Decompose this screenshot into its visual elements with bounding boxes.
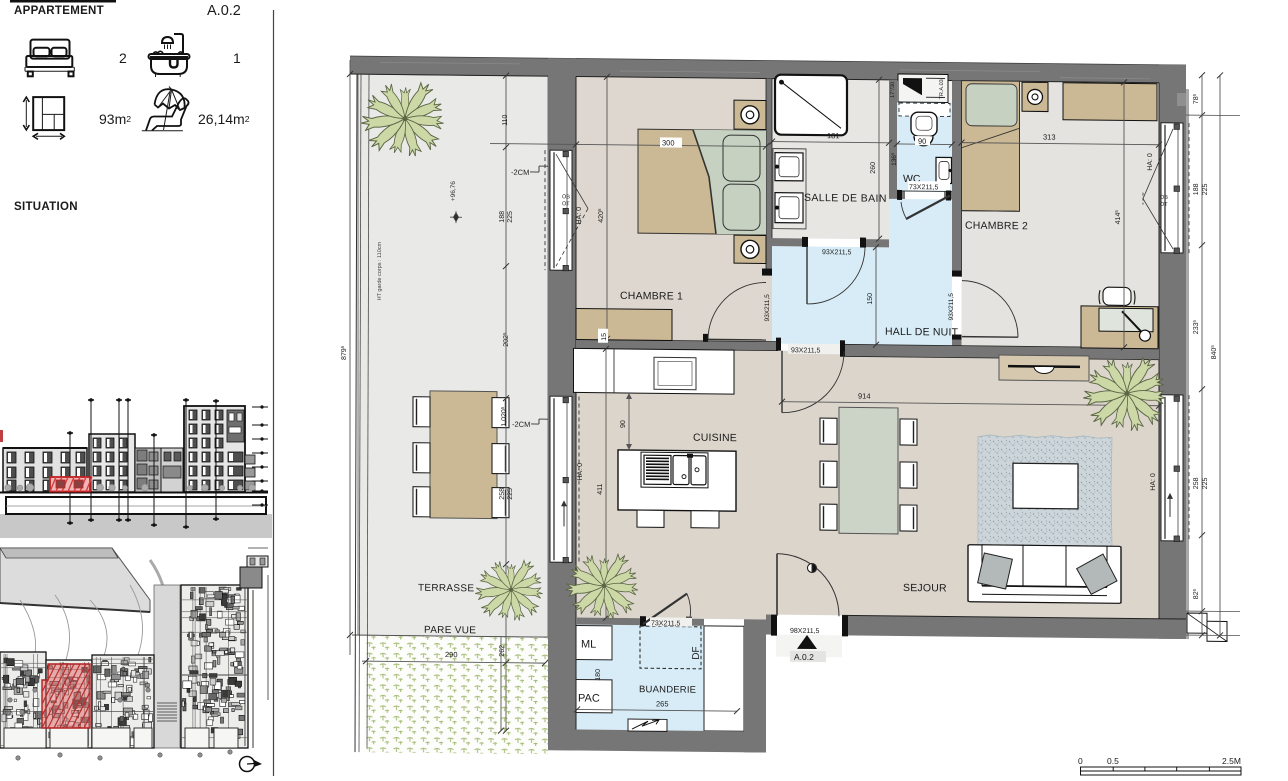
svg-text:180: 180	[595, 669, 602, 681]
svg-text:ML: ML	[581, 639, 596, 651]
svg-text:26,14m2: 26,14m2	[198, 111, 250, 127]
svg-text:93X211,5: 93X211,5	[822, 249, 852, 256]
svg-text:300: 300	[662, 138, 675, 147]
svg-text:DF: DF	[691, 646, 702, 659]
svg-text:CHAMBRE 1: CHAMBRE 1	[620, 290, 683, 303]
svg-text:A.0.2: A.0.2	[794, 652, 814, 662]
svg-text:CUISINE: CUISINE	[693, 432, 737, 444]
svg-text:CHAMBRE 2: CHAMBRE 2	[965, 220, 1028, 233]
svg-text:1: 1	[233, 50, 241, 66]
svg-text:HA: 0: HA: 0	[1150, 473, 1157, 491]
svg-text:-2CM: -2CM	[511, 168, 529, 177]
svg-text:HALL DE NUIT: HALL DE NUIT	[885, 326, 959, 339]
svg-text:188: 188	[1193, 183, 1200, 195]
svg-text:290: 290	[445, 650, 458, 659]
svg-text:APPARTEMENT: APPARTEMENT	[14, 5, 104, 17]
svg-text:A.0.2: A.0.2	[207, 3, 241, 19]
svg-text:265: 265	[656, 699, 669, 708]
svg-text:HA: 0: HA: 0	[576, 207, 583, 225]
svg-text:914: 914	[858, 392, 871, 401]
svg-text:HT garde corps : 110cm: HT garde corps : 110cm	[377, 241, 383, 300]
svg-text:HA: 0: HA: 0	[1147, 153, 1154, 171]
svg-text:2: 2	[119, 50, 127, 66]
svg-text:313: 313	[1043, 133, 1056, 142]
svg-text:150: 150	[867, 293, 874, 305]
svg-text:188: 188	[499, 211, 506, 223]
svg-text:OT: OT	[1160, 202, 1168, 208]
svg-text:OB: OB	[1160, 195, 1168, 201]
svg-text:93X211,5: 93X211,5	[764, 294, 771, 322]
svg-text:225: 225	[507, 211, 514, 223]
svg-text:2.5M: 2.5M	[1222, 756, 1241, 766]
svg-text:OB: OB	[562, 194, 570, 200]
svg-text:73X211,5: 73X211,5	[651, 620, 681, 627]
svg-text:OT: OT	[562, 201, 570, 207]
svg-text:90: 90	[918, 137, 926, 146]
svg-text:SITUATION: SITUATION	[14, 201, 78, 213]
svg-text:258: 258	[499, 488, 506, 500]
svg-text:TR.A.03: TR.A.03	[939, 79, 945, 99]
svg-text:15: 15	[601, 333, 608, 341]
svg-text:17°/30: 17°/30	[890, 82, 896, 98]
svg-text:73X211,5: 73X211,5	[909, 184, 939, 191]
svg-text:-2CM: -2CM	[512, 420, 530, 429]
svg-text:258: 258	[1193, 477, 1200, 489]
svg-text:93X211,5: 93X211,5	[791, 347, 821, 354]
svg-text:TERRASSE: TERRASSE	[418, 583, 474, 595]
svg-text:0: 0	[1078, 756, 1083, 766]
svg-text:90: 90	[620, 420, 627, 428]
svg-text:181: 181	[827, 131, 840, 140]
svg-text:93X211,5: 93X211,5	[948, 293, 955, 321]
svg-text:110: 110	[502, 114, 509, 125]
svg-text:262: 262	[499, 645, 506, 657]
svg-text:SEJOUR: SEJOUR	[903, 582, 947, 594]
svg-text:225: 225	[507, 488, 514, 500]
svg-text:PAC: PAC	[578, 692, 600, 704]
svg-text:260: 260	[870, 162, 877, 174]
svg-text:0.5: 0.5	[1107, 756, 1119, 766]
svg-text:+96,76: +96,76	[450, 181, 457, 202]
svg-text:BUANDERIE: BUANDERIE	[639, 684, 696, 696]
svg-text:PARE VUE: PARE VUE	[424, 625, 476, 637]
svg-text:225: 225	[1202, 183, 1209, 195]
svg-text:1,0205: 1,0205	[500, 406, 508, 427]
svg-text:225: 225	[1202, 477, 1209, 489]
svg-text:411: 411	[597, 483, 604, 494]
svg-text:SALLE DE BAIN: SALLE DE BAIN	[804, 192, 887, 205]
svg-text:HA: 0: HA: 0	[577, 463, 584, 481]
svg-text:98X211,5: 98X211,5	[790, 628, 820, 635]
